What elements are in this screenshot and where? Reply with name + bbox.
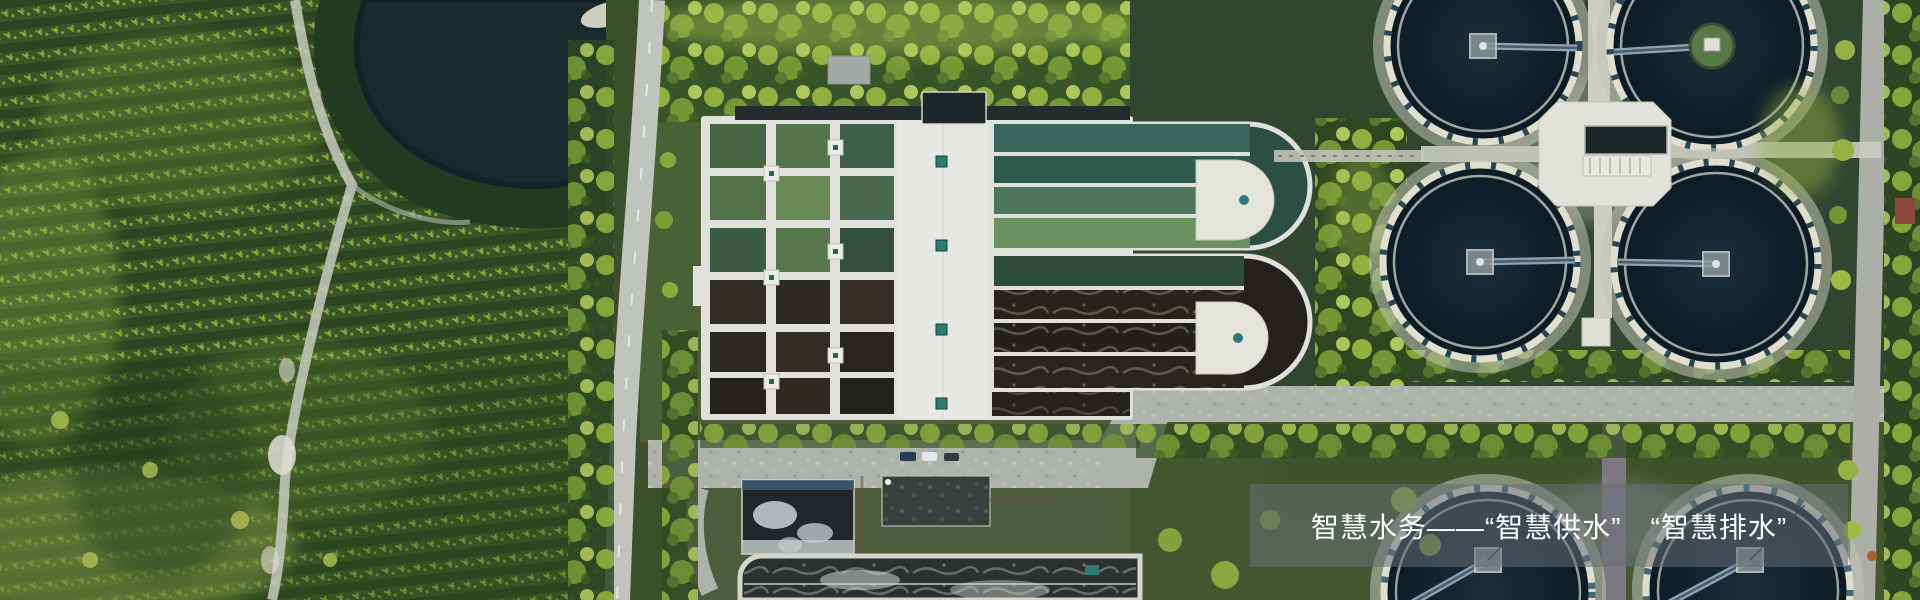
hero-banner: 智慧水务——“智慧供水” “智慧排水”: [0, 0, 1920, 600]
caption-overlay: 智慧水务——“智慧供水” “智慧排水”: [1250, 484, 1848, 567]
caption-text: 智慧水务——“智慧供水” “智慧排水”: [1311, 506, 1787, 546]
